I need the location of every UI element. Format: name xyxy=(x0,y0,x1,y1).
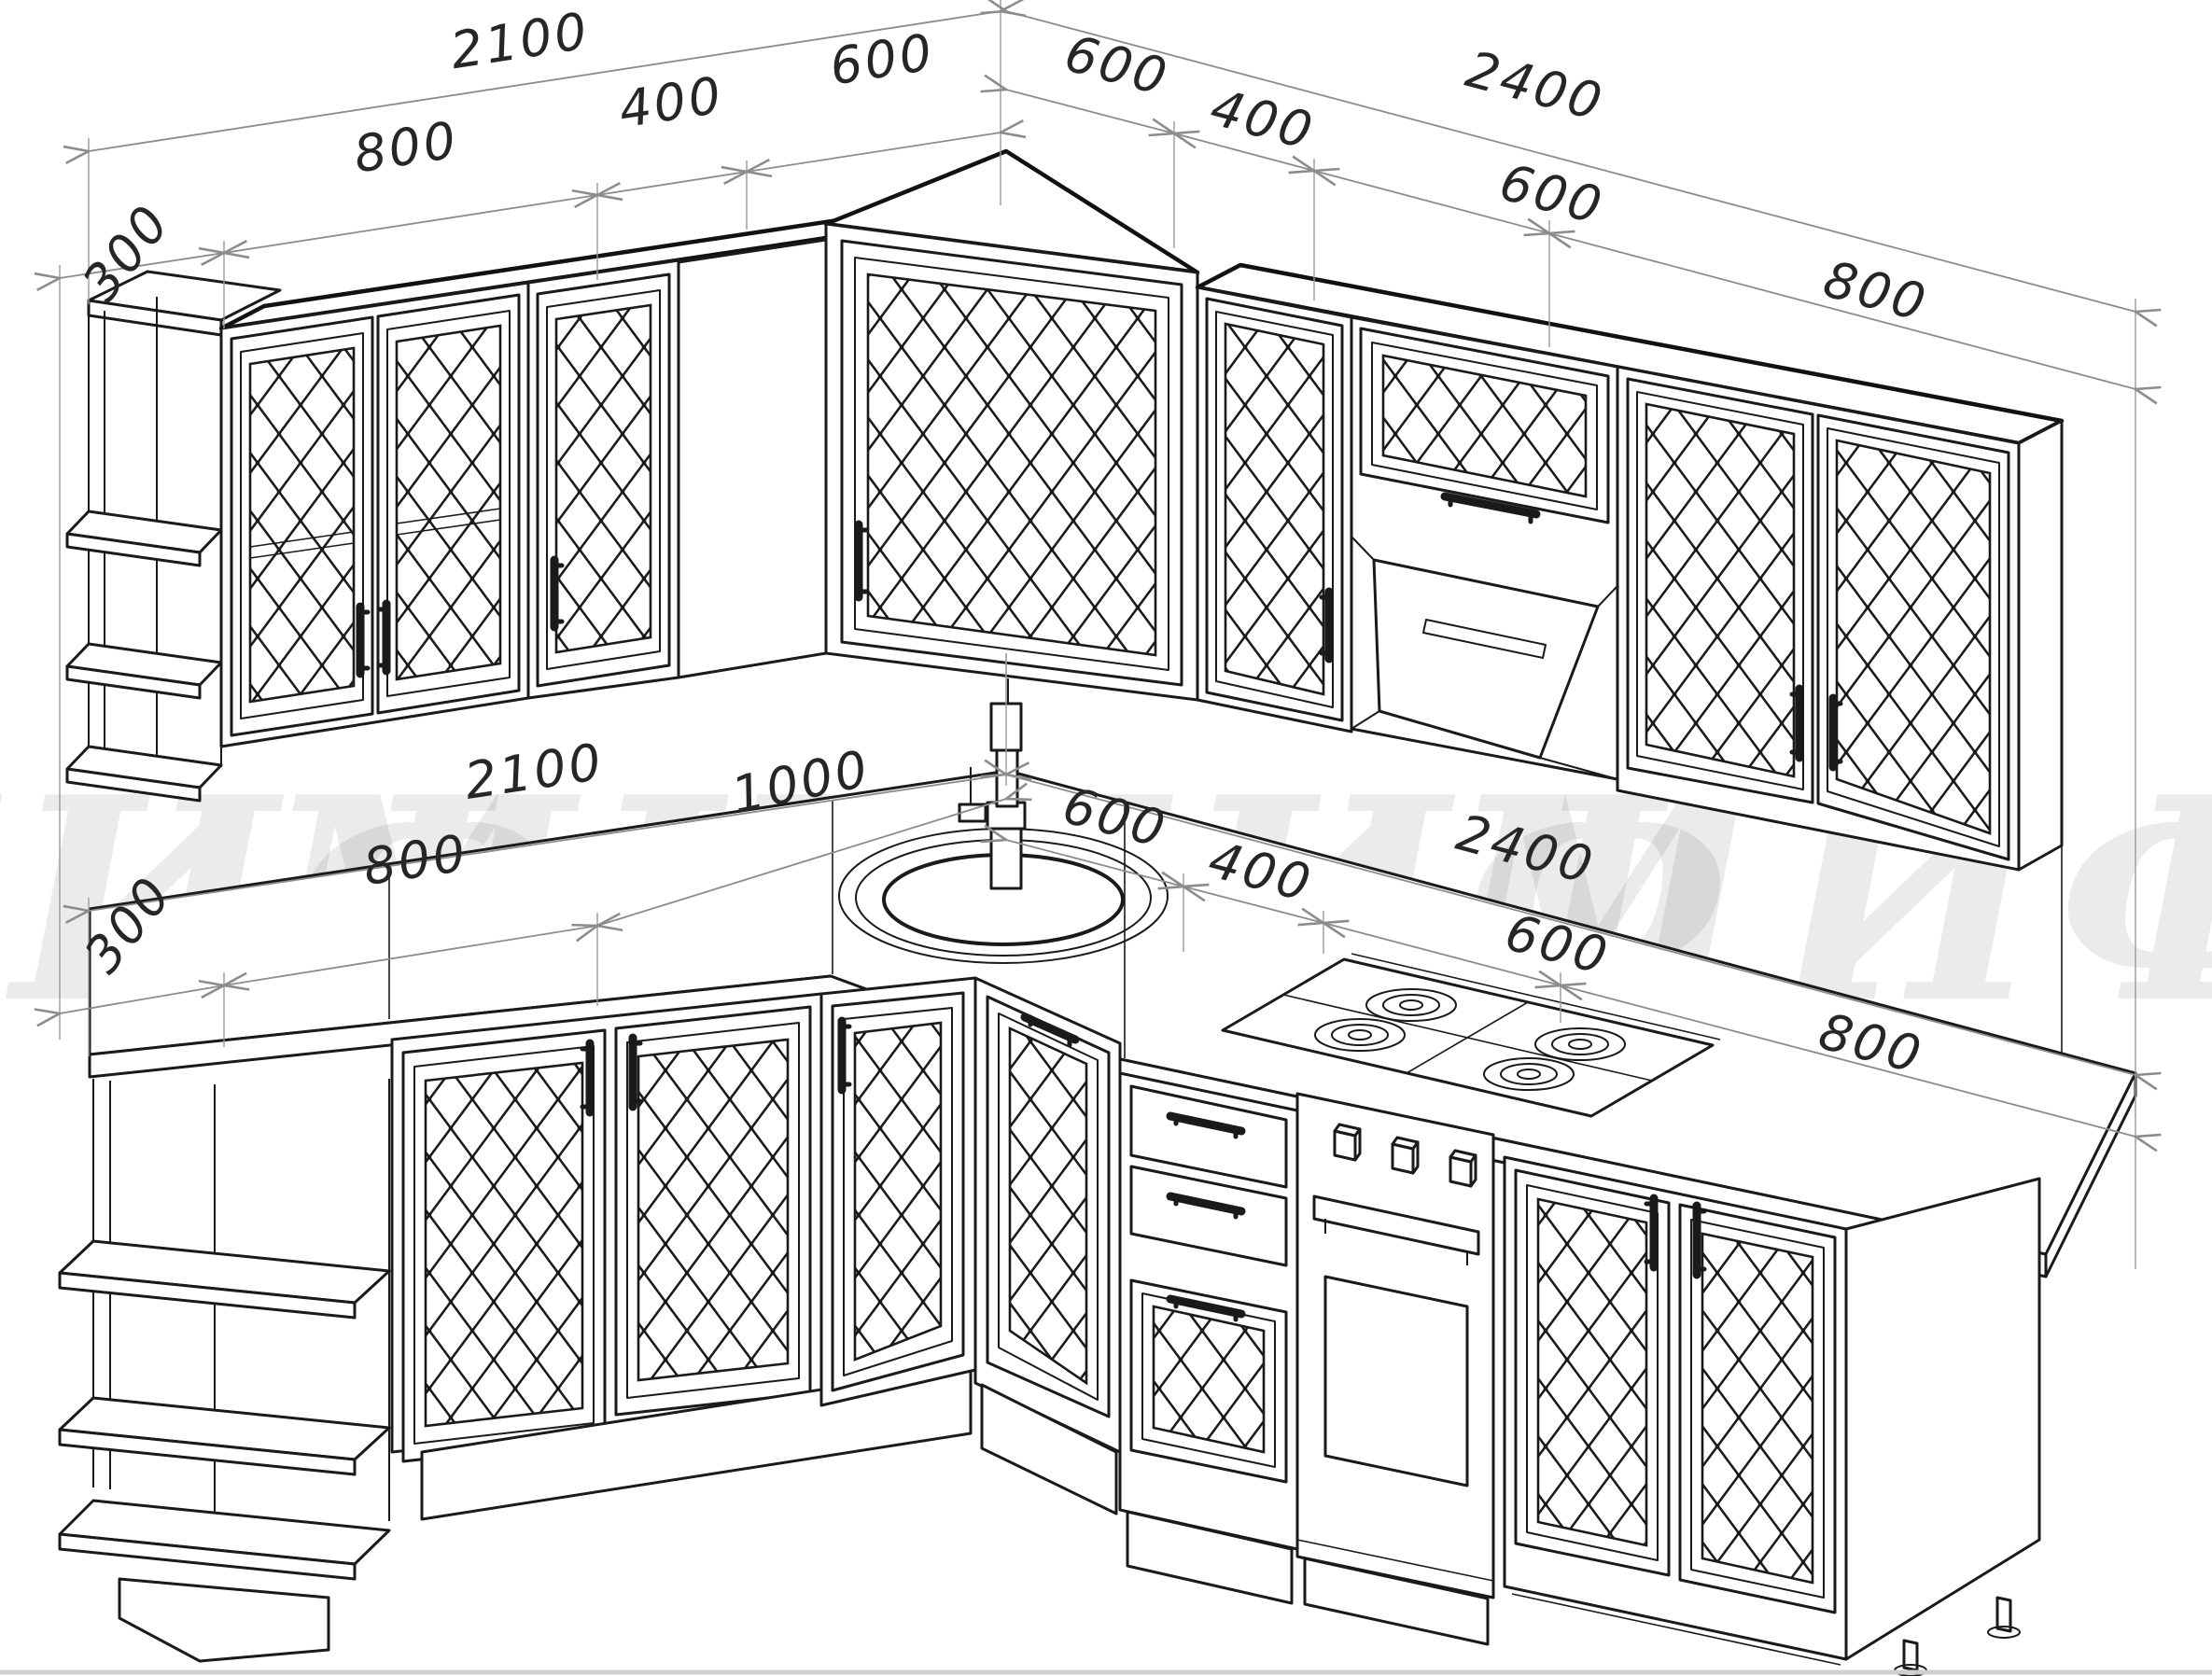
base-cabinet-1000 xyxy=(821,978,975,1405)
kitchen-drawing-page: МИФ МИФ МИФ МИФ xyxy=(0,0,2212,1676)
oven xyxy=(1297,1094,1493,1644)
dim-upper-left-total: 2100 xyxy=(447,1,594,80)
hood-cabinet xyxy=(1351,317,1617,779)
corner-sink-cabinet xyxy=(975,978,1120,1514)
base-end-shelf-unit xyxy=(60,1079,389,1661)
upper-cabinet-400-left xyxy=(528,260,679,698)
dim-upper-right-600a: 600 xyxy=(1059,23,1176,107)
dim-upper-right-total: 2400 xyxy=(1460,39,1610,132)
oven-window xyxy=(1325,1277,1467,1486)
dim-upper-left-400: 400 xyxy=(615,65,727,139)
dim-upper-left-800: 800 xyxy=(350,110,462,184)
kitchen-technical-drawing: МИФ МИФ МИФ МИФ xyxy=(0,0,2212,1676)
corner-plinth xyxy=(119,1579,329,1661)
upper-cabinet-800-left xyxy=(221,283,528,747)
side-panel xyxy=(1846,1179,2039,1659)
dim-upper-left-600: 600 xyxy=(826,22,938,96)
dim-upper-right-800: 800 xyxy=(1818,249,1935,333)
upper-cabinet-400-right xyxy=(1197,287,1351,732)
drawer-unit xyxy=(1120,1073,1297,1603)
base-cabinet-800-right xyxy=(1505,1157,2039,1676)
side-panel xyxy=(2019,421,2062,870)
